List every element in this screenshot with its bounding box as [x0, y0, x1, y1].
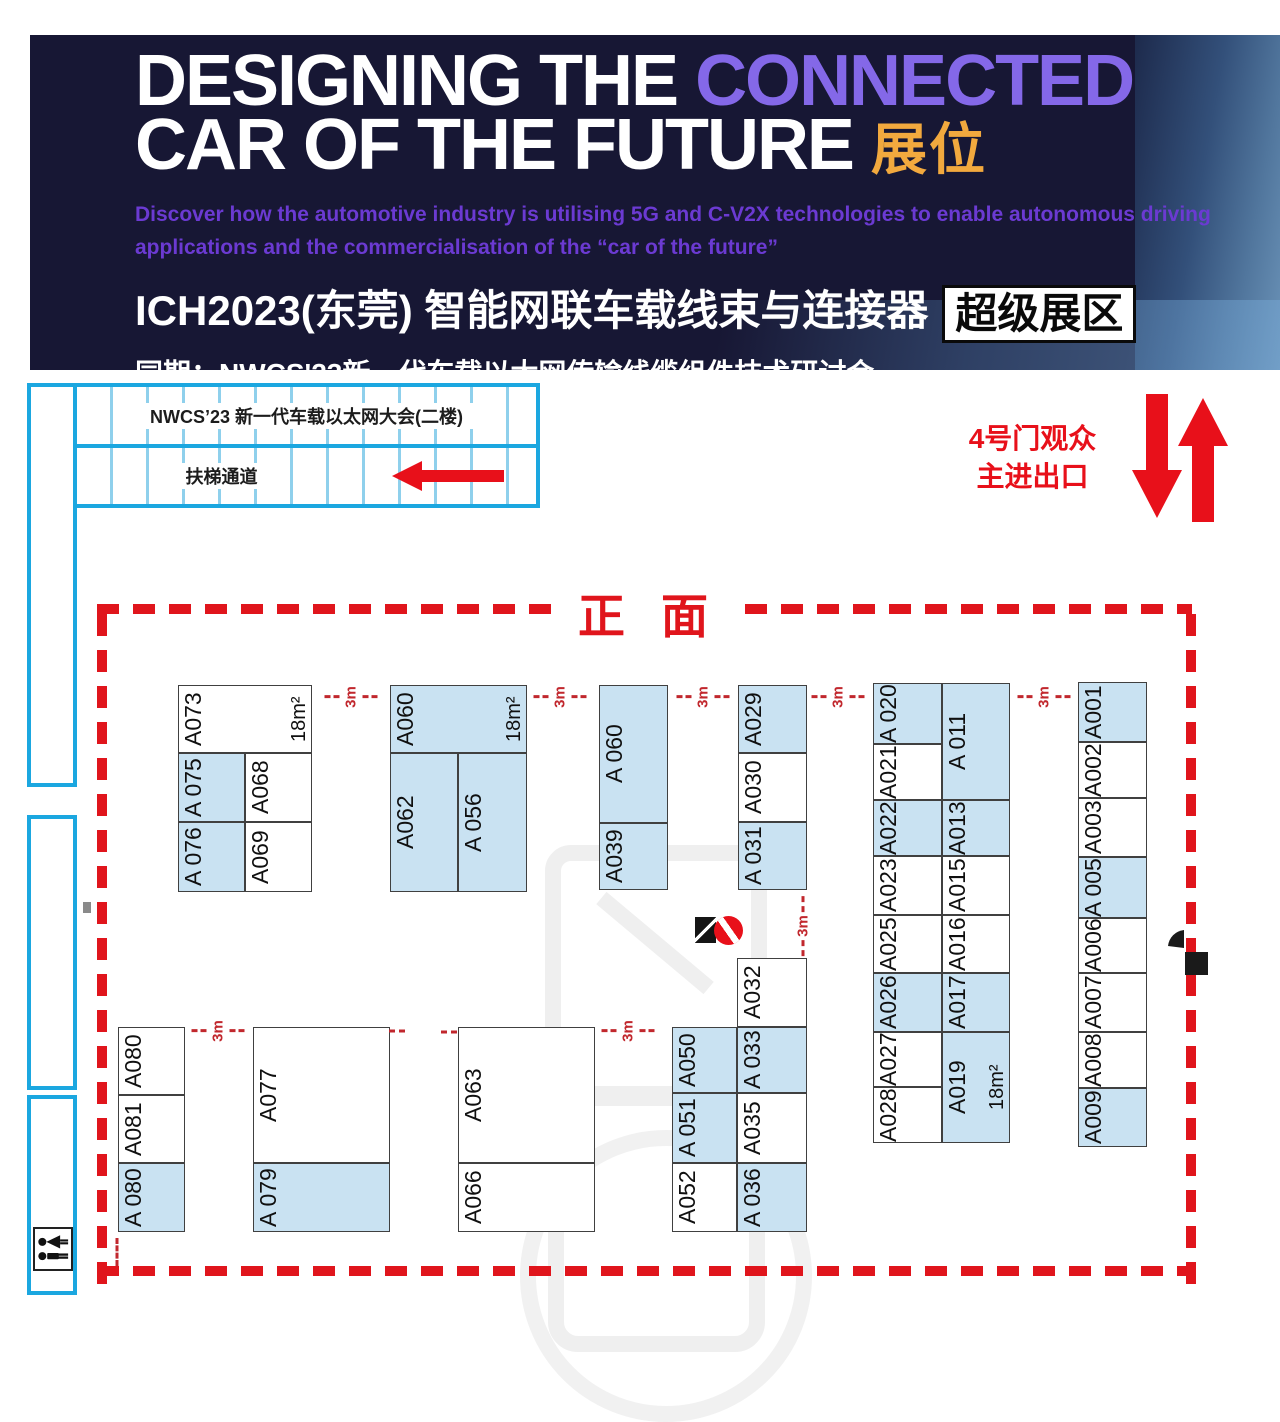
banner: DESIGNING THE CONNECTED CAR OF THE FUTUR…: [30, 35, 1280, 370]
booth-label: A003: [1080, 799, 1107, 856]
booth-label: A002: [1080, 743, 1107, 797]
booth-A029: A029: [738, 685, 807, 753]
booth-label: A025: [875, 916, 902, 972]
booth-A035: A035: [737, 1093, 807, 1163]
dim-3m-label: 3m: [795, 896, 812, 956]
banner-title-line1: DESIGNING THE CONNECTED: [135, 49, 1280, 113]
booth-A015: A015: [942, 856, 1010, 915]
gate4-line1: 4号门观众: [950, 420, 1115, 458]
escalator-left-arrow-icon: [392, 461, 504, 491]
wall-column-middle: [27, 815, 77, 1090]
dim-dash: [441, 1031, 457, 1034]
booth-A011: A 011: [942, 683, 1010, 800]
stairs-row-hall: NWCS’23 新一代车载以太网大会(二楼): [77, 387, 536, 444]
booth-A063: A063: [458, 1027, 595, 1163]
booth-A062: A062: [390, 753, 458, 892]
booth-label: A021: [875, 745, 902, 799]
dim-text: 3m: [620, 1020, 637, 1042]
booth-label: A006: [1080, 919, 1107, 972]
dim-dash: [116, 1238, 119, 1266]
pillar-icon: [695, 917, 716, 943]
hall-border-top-right: [745, 604, 1192, 614]
booth-A039: A039: [599, 823, 668, 890]
booth-A006: A006: [1078, 918, 1147, 973]
restroom-icon: [37, 1231, 69, 1267]
dim-3m-label: 3m: [192, 1020, 245, 1042]
booth-label: A029: [740, 686, 767, 752]
booth-A075: A 075: [178, 753, 245, 822]
booth-label: A068: [247, 754, 274, 821]
booth-A022: A022: [873, 800, 942, 856]
booth-A005: A 005: [1078, 857, 1147, 918]
booth-label: A052: [674, 1164, 701, 1231]
booth-A031: A 031: [738, 822, 807, 890]
booth-A077: A077: [253, 1027, 390, 1163]
wall-marker: [83, 902, 91, 913]
booth-A028: A028: [873, 1087, 942, 1143]
dim-dash: [389, 1030, 405, 1033]
booth-label: A039: [601, 824, 628, 889]
hall-border-right: [1186, 614, 1196, 1284]
dim-text: 3m: [343, 686, 360, 708]
banner-subtitle: Discover how the automotive industry is …: [135, 198, 1280, 264]
booth-label: A001: [1080, 683, 1107, 741]
booth-A009: A009: [1078, 1088, 1147, 1147]
booth-label: A 076: [180, 823, 207, 891]
dim-text: 3m: [1036, 686, 1053, 708]
booth-label: A069: [247, 823, 274, 891]
booth-A020: A 020: [873, 683, 942, 744]
dim-text: 3m: [695, 686, 712, 708]
booth-A033: A 033: [737, 1027, 807, 1093]
booth-A080: A 080: [118, 1163, 185, 1232]
booth-A050: A050: [672, 1027, 737, 1093]
booth-label: A022: [875, 801, 902, 855]
booth-A060: A 060: [599, 685, 668, 823]
dim-3m-label: 3m: [602, 1020, 655, 1042]
booth-label: A019: [944, 1033, 971, 1142]
booth-A002: A002: [1078, 742, 1147, 798]
dim-text: 3m: [830, 686, 847, 708]
up-arrow-icon: [1178, 398, 1228, 522]
booth-label: A081: [120, 1096, 147, 1162]
booth-label: A 080: [120, 1164, 147, 1231]
hall-border-bottom: [97, 1266, 1192, 1276]
booth-label: A 075: [180, 754, 207, 821]
booth-label: A030: [740, 754, 767, 821]
booth-A069: A069: [245, 822, 312, 892]
booth-label: A026: [875, 974, 902, 1031]
title-accent2: 展位: [871, 118, 987, 181]
wall-column-top: [27, 383, 77, 787]
booth-label: A 060: [601, 686, 628, 822]
hall-label: NWCS’23 新一代车载以太网大会(二楼): [140, 403, 473, 429]
booth-A026: A026: [873, 973, 942, 1032]
booth-A017: A017: [942, 973, 1010, 1032]
booth-A081: A081: [118, 1095, 185, 1163]
banner-title-line2: CAR OF THE FUTURE 展位: [135, 113, 1280, 182]
down-arrow-icon: [1132, 394, 1182, 518]
expo-badge: 超级展区: [942, 285, 1136, 343]
booth-A079: A 079: [253, 1163, 390, 1232]
booth-label: A073: [180, 686, 207, 752]
door-swing-icon: [1164, 926, 1186, 950]
booth-label: A023: [875, 857, 902, 914]
dim-3m-label: 3m: [677, 686, 730, 708]
entrance-arrows: [1130, 392, 1230, 524]
booth-area-label: 18m²: [288, 686, 311, 752]
booth-A007: A007: [1078, 973, 1147, 1032]
booth-A076: A 076: [178, 822, 245, 892]
subtitle-line1: Discover how the automotive industry is …: [135, 198, 1280, 231]
dim-3m-label: 3m: [812, 686, 865, 708]
booth-label: A007: [1080, 974, 1107, 1031]
booth-label: A066: [460, 1164, 487, 1231]
gate4-line2: 主进出口: [950, 458, 1115, 496]
no-entry-icon: [714, 916, 743, 945]
booth-label: A017: [944, 974, 971, 1031]
booth-A003: A003: [1078, 798, 1147, 857]
booth-label: A015: [944, 857, 971, 914]
escalator-label: 扶梯通道: [176, 463, 268, 489]
booth-A068: A068: [245, 753, 312, 822]
gate4-entrance-label: 4号门观众 主进出口: [950, 420, 1115, 496]
hall-border-top-left: [97, 604, 555, 614]
booth-label: A032: [739, 959, 766, 1026]
booth-A036: A 036: [737, 1163, 807, 1232]
booth-label: A 036: [739, 1164, 766, 1231]
booth-label: A009: [1080, 1089, 1107, 1146]
booth-label: A 011: [944, 684, 971, 799]
booth-A080: A080: [118, 1027, 185, 1095]
booth-label: A 051: [674, 1094, 701, 1162]
dim-3m-label: 3m: [325, 686, 378, 708]
booth-label: A 033: [739, 1028, 766, 1092]
booth-label: A 056: [460, 754, 487, 891]
booth-A056: A 056: [458, 753, 527, 892]
booth-A066: A066: [458, 1163, 595, 1232]
booth-label: A013: [944, 801, 971, 855]
booth-A013: A013: [942, 800, 1010, 856]
dim-text: 3m: [210, 1020, 227, 1042]
dim-text: 3m: [795, 915, 812, 937]
booth-label: A027: [875, 1033, 902, 1086]
title-part2: CAR OF THE FUTURE: [135, 105, 871, 185]
expo-title-line: ICH2023(东莞) 智能网联车载线束与连接器超级展区: [135, 277, 1280, 343]
booth-area-label: 18m²: [986, 1033, 1009, 1142]
booth-A016: A016: [942, 915, 1010, 973]
booth-label: A060: [392, 686, 419, 752]
booth-label: A063: [460, 1028, 487, 1162]
booth-label: A008: [1080, 1033, 1107, 1087]
expo-title: ICH2023(东莞) 智能网联车载线束与连接器: [135, 287, 928, 334]
booth-label: A 020: [875, 684, 902, 743]
booth-label: A028: [875, 1088, 902, 1142]
door-icon: [1185, 952, 1208, 975]
booth-label: A050: [674, 1028, 701, 1092]
booth-area-label: 18m²: [503, 686, 526, 752]
booth-label: A 031: [740, 823, 767, 889]
stairs-row-escalator: 扶梯通道: [77, 448, 536, 504]
hall-border-left: [97, 614, 107, 1284]
dim-3m-label: 3m: [1018, 686, 1071, 708]
booth-A073: A07318m²: [178, 685, 312, 753]
booth-label: A080: [120, 1028, 147, 1094]
booth-A025: A025: [873, 915, 942, 973]
booth-label: A035: [739, 1094, 766, 1162]
booth-label: A077: [255, 1028, 282, 1162]
concurrent-event-line: 同期：NWCS'23新一代车载以太网传输线缆组件技术研讨会: [135, 352, 1280, 370]
booth-label: A062: [392, 754, 419, 891]
booth-A032: A032: [737, 958, 807, 1027]
booth-A060: A06018m²: [390, 685, 527, 753]
subtitle-line2: applications and the commercialisation o…: [135, 231, 1280, 264]
front-side-label: 正面: [578, 578, 744, 647]
stairs-block: NWCS’23 新一代车载以太网大会(二楼) 扶梯通道: [73, 383, 540, 508]
booth-A021: A021: [873, 744, 942, 800]
booth-label: A 079: [255, 1164, 282, 1231]
booth-A023: A023: [873, 856, 942, 915]
toilet-box: [33, 1227, 73, 1271]
booth-A008: A008: [1078, 1032, 1147, 1088]
booth-label: A016: [944, 916, 971, 972]
booth-A027: A027: [873, 1032, 942, 1087]
booth-A001: A001: [1078, 682, 1147, 742]
booth-A030: A030: [738, 753, 807, 822]
booth-A051: A 051: [672, 1093, 737, 1163]
booth-A052: A052: [672, 1163, 737, 1232]
dim-3m-label: 3m: [534, 686, 587, 708]
booth-A019: A01918m²: [942, 1032, 1010, 1143]
dim-text: 3m: [552, 686, 569, 708]
booth-label: A 005: [1080, 858, 1107, 917]
